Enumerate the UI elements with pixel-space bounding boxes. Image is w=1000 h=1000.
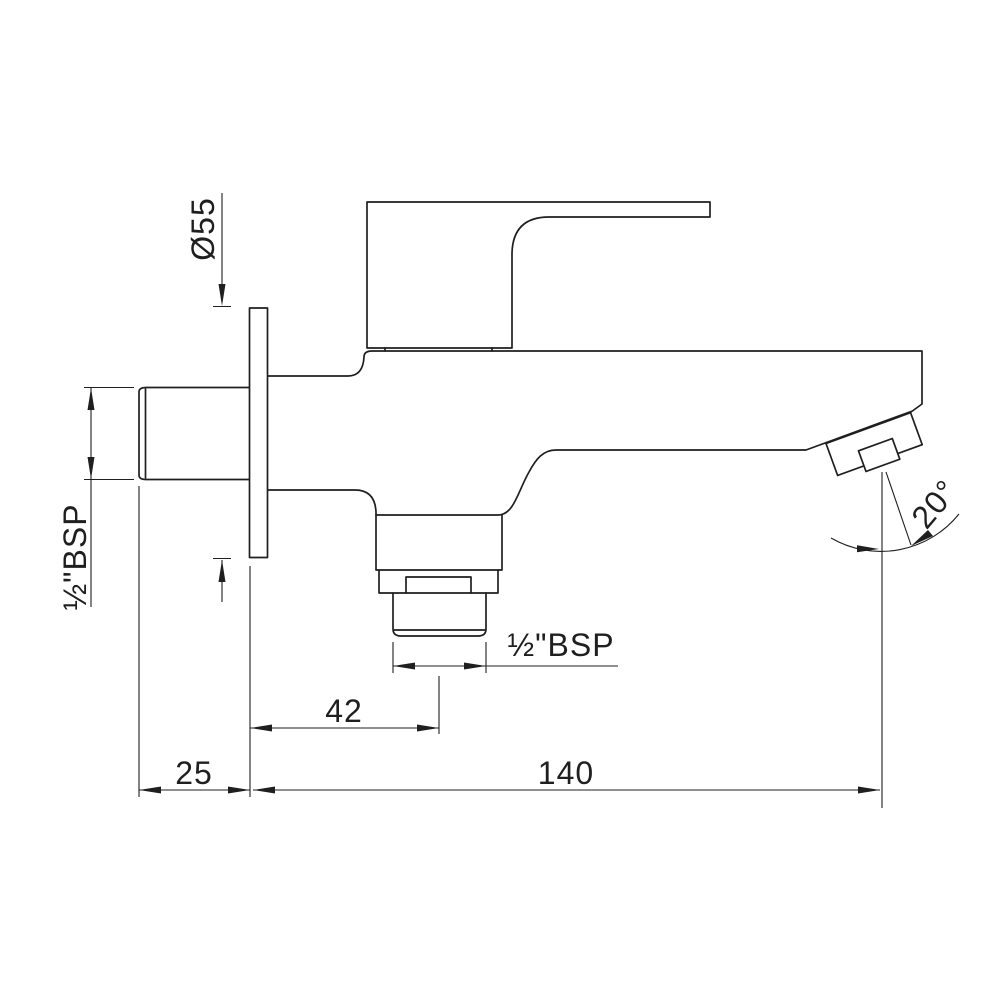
arrowhead-right: [417, 725, 439, 732]
drawing-svg: Ø55 ½"BSP ½"BSP 42 25 140: [0, 0, 1000, 1000]
dimension-label-spout-reach: 140: [538, 755, 594, 791]
dim-outlet-offset: 42: [250, 676, 439, 734]
faucet-outline: [139, 202, 924, 636]
arrowhead-left: [250, 725, 272, 732]
arrowhead-down: [88, 457, 95, 479]
dimension-label-wall-distance: 25: [175, 755, 213, 791]
arrowhead-left: [139, 787, 161, 794]
dim-spout-reach: 140: [253, 755, 880, 794]
arrowhead-left: [253, 787, 275, 794]
dim-outlet-thread: ½"BSP: [393, 627, 618, 673]
aerator-collar: [826, 413, 924, 481]
faucet-technical-drawing: Ø55 ½"BSP ½"BSP 42 25 140: [0, 0, 1000, 1000]
dimension-label-outlet-offset: 42: [325, 693, 363, 729]
spout-body: [267, 351, 922, 515]
dimension-label-spout-angle: 20°: [904, 473, 965, 536]
dim-spout-angle: 20°: [831, 472, 965, 808]
handle-lever: [367, 202, 710, 351]
wall-flange: [250, 308, 268, 558]
bottom-outlet: [376, 515, 502, 636]
arrowhead-left: [393, 663, 415, 670]
dimension-label-inlet-thread: ½"BSP: [57, 503, 93, 610]
dim-inlet-thread: ½"BSP: [57, 388, 134, 611]
arrowhead-right: [464, 663, 486, 670]
dim-wall-distance: 25: [139, 486, 250, 797]
arrowhead-up: [219, 560, 226, 582]
arrowhead-down: [219, 284, 226, 306]
dimension-label-outlet-thread: ½"BSP: [507, 627, 614, 663]
dimension-label-flange-diameter: Ø55: [185, 197, 221, 260]
arrowhead-up: [88, 388, 95, 410]
arrowhead-right: [858, 787, 880, 794]
inlet-pipe: [139, 388, 249, 480]
arrowhead-right: [228, 787, 250, 794]
dim-flange-diameter: Ø55: [185, 193, 231, 602]
